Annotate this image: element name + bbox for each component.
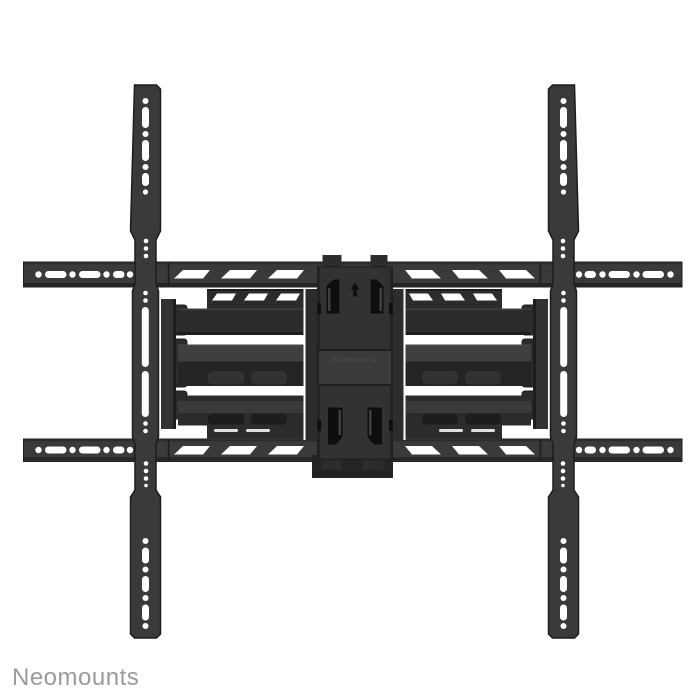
adapter-plate-top [207, 289, 304, 309]
mount-left-half [35, 85, 318, 638]
tv-wall-mount-image: Neomounts [0, 0, 700, 700]
mount-right-half [391, 85, 674, 638]
brand-watermark: Neomounts [12, 664, 139, 692]
lower-arm-bar [178, 396, 304, 426]
product-photo: Neomounts [0, 0, 700, 700]
vesa-holes-top-left [35, 271, 133, 278]
wall-plate-embossed-text: Neomounts [334, 357, 377, 364]
upper-arm-bar [178, 309, 304, 336]
rail-seam-bottom [168, 440, 170, 461]
wall-plate: Neomounts [312, 255, 393, 478]
vertical-rail-holes-bottom [142, 538, 149, 629]
vertical-rail-left [131, 85, 161, 638]
middle-arm-bar [178, 345, 304, 387]
vertical-rail-holes-top [142, 98, 149, 195]
adapter-plate-bottom [207, 426, 306, 440]
vesa-holes-bottom-left [35, 447, 133, 454]
rail-seam-top [168, 263, 170, 286]
arm-elbow [306, 289, 319, 440]
wall-plate-embossed-subline [348, 366, 362, 367]
articulating-arm-left [161, 289, 319, 440]
